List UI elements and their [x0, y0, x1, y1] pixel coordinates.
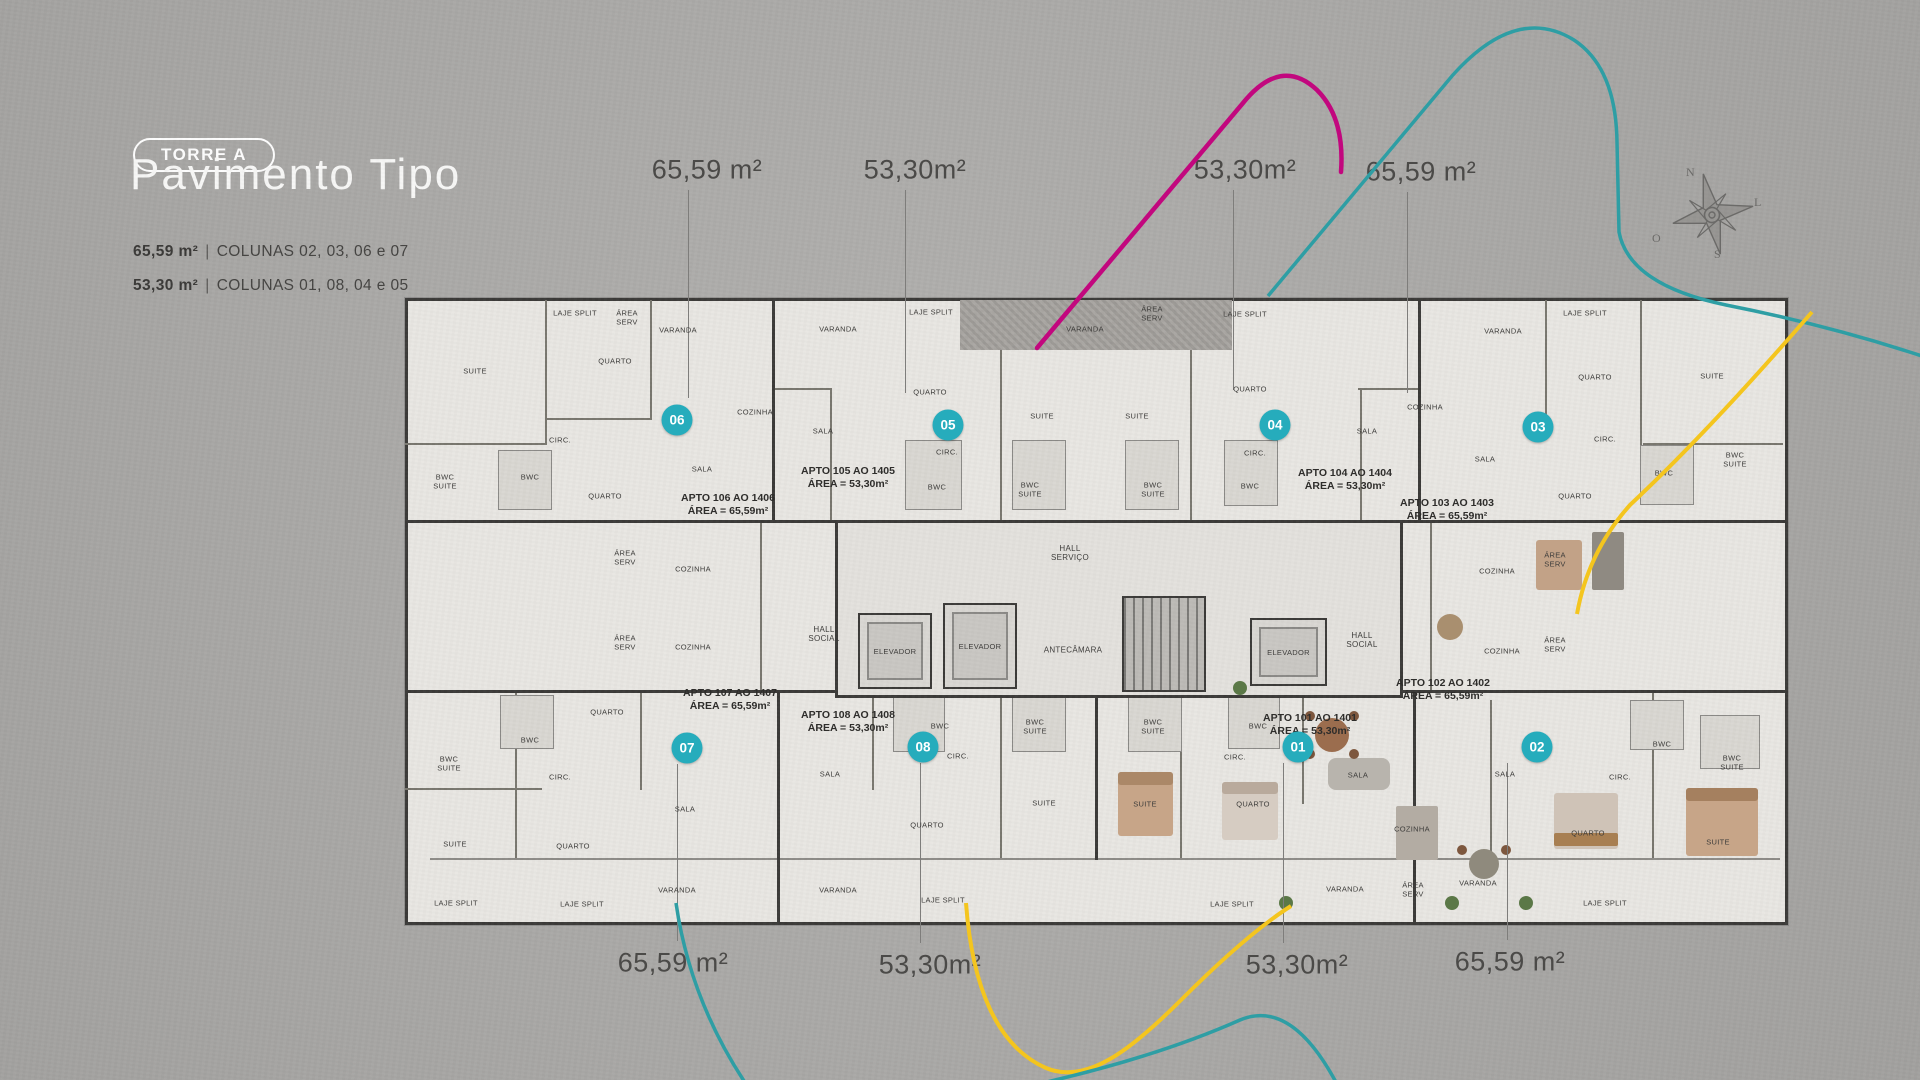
callout-leader-7 — [1507, 763, 1508, 940]
chair-4 — [1457, 845, 1467, 855]
floorplan-canvas: TORRE A Pavimento Tipo 65,59 m²|COLUNAS … — [0, 0, 1920, 1080]
core-label-0: HALL SERVIÇO — [1051, 544, 1089, 562]
room-label-quarto-12: QUARTO — [913, 389, 947, 398]
room-label-laje-split-9: LAJE SPLIT — [1563, 310, 1607, 319]
callout-leader-3 — [1407, 192, 1408, 393]
callout-leader-1 — [905, 190, 906, 393]
room-label-bwc-suite-78: BWC SUITE — [1720, 754, 1744, 771]
room-label-cozinha-41: COZINHA — [1479, 568, 1515, 577]
unit-wall-3 — [1095, 692, 1098, 860]
compass-west-label: O — [1652, 231, 1661, 245]
area-callout-7: 65,59 m² — [1455, 947, 1566, 978]
interior-wall-11 — [1545, 300, 1547, 418]
furniture-3 — [1222, 782, 1278, 794]
room-label-bwc-suite-46: BWC SUITE — [437, 755, 461, 772]
bathroom-block-3 — [1125, 440, 1179, 510]
room-label-circ--49: CIRC. — [549, 774, 571, 783]
legend-row-65: 65,59 m²|COLUNAS 02, 03, 06 e 07 — [133, 243, 409, 261]
room-label-suite-13: SUITE — [1030, 413, 1054, 422]
room-label-quarto-35: QUARTO — [1558, 493, 1592, 502]
unit-badge-01: 01 — [1283, 732, 1314, 763]
apartment-label-103: APTO 103 AO 1403 ÁREA = 65,59m² — [1400, 497, 1494, 523]
compass-north-label: N — [1686, 165, 1695, 179]
room-label-varanda-5: VARANDA — [1066, 326, 1104, 335]
callout-leader-5 — [920, 763, 921, 943]
room-label-varanda-53: VARANDA — [658, 887, 696, 896]
apartment-label-101: APTO 101 AO 1401 ÁREA = 53,30m² — [1263, 712, 1357, 738]
room-label--rea-serv-40: ÁREA SERV — [1544, 551, 1566, 568]
room-label-suite-10: SUITE — [463, 368, 487, 377]
core-label-1: ANTECÂMARA — [1044, 645, 1103, 654]
core-label-3: HALL SOCIAL — [1346, 631, 1377, 649]
room-label-circ--29: CIRC. — [1594, 436, 1616, 445]
furniture-1 — [1118, 772, 1173, 785]
compass-rose — [1664, 165, 1761, 262]
room-label-cozinha-43: COZINHA — [675, 644, 711, 653]
plant-icon-2 — [1519, 896, 1533, 910]
stairwell — [1122, 596, 1206, 692]
yellow-capsule-bottom — [966, 903, 1291, 1072]
plant-icon-1 — [1445, 896, 1459, 910]
table-round-2 — [1437, 614, 1463, 640]
room-label-suite-14: SUITE — [1125, 413, 1149, 422]
room-label--rea-serv-42: ÁREA SERV — [614, 634, 636, 651]
room-label-bwc-suite-33: BWC SUITE — [433, 473, 457, 490]
room-label--rea-serv-38: ÁREA SERV — [614, 549, 636, 566]
legend-area-65: 65,59 m² — [133, 243, 198, 260]
room-label--rea-serv-72: ÁREA SERV — [1402, 881, 1424, 898]
room-label-laje-split-55: LAJE SPLIT — [434, 900, 478, 909]
interior-wall-0 — [545, 300, 547, 445]
apartment-label-108: APTO 108 AO 1408 ÁREA = 53,30m² — [801, 709, 895, 735]
table-round-1 — [1469, 849, 1499, 879]
room-label-cozinha-45: COZINHA — [1484, 648, 1520, 657]
apartment-label-107: APTO 107 AO 1407 ÁREA = 65,59m² — [683, 687, 777, 713]
room-label-quarto-51: QUARTO — [556, 843, 590, 852]
legend-area-53: 53,30 m² — [133, 277, 198, 294]
room-label-bwc-suite-64: BWC SUITE — [1141, 718, 1165, 735]
plant-icon-0 — [1279, 896, 1293, 910]
unit-badge-03: 03 — [1523, 412, 1554, 443]
room-label-bwc-suite-37: BWC SUITE — [1723, 451, 1747, 468]
interior-wall-3 — [547, 418, 652, 420]
legend-separator: | — [205, 277, 209, 294]
callout-leader-0 — [688, 190, 689, 398]
room-label-circ--18: CIRC. — [549, 437, 571, 446]
interior-wall-18 — [872, 692, 874, 790]
room-label-bwc-47: BWC — [521, 737, 539, 746]
room-label-cozinha-39: COZINHA — [675, 566, 711, 575]
room-label-laje-split-4: LAJE SPLIT — [909, 309, 953, 318]
interior-wall-12 — [1640, 300, 1642, 445]
apartment-label-102: APTO 102 AO 1402 ÁREA = 65,59m² — [1396, 677, 1490, 703]
room-label-bwc-22: BWC — [928, 484, 946, 493]
room-label-sala-74: SALA — [1495, 771, 1515, 780]
room-label--rea-serv-6: ÁREA SERV — [1141, 305, 1163, 322]
bathroom-block-2 — [1012, 440, 1066, 510]
interior-wall-5 — [772, 388, 832, 390]
unit-badge-05: 05 — [933, 410, 964, 441]
room-label-bwc-36: BWC — [1655, 470, 1673, 479]
core-label-2: HALL SOCIAL — [808, 625, 839, 643]
legend-cols-65: COLUNAS 02, 03, 06 e 07 — [217, 243, 409, 260]
callout-leader-6 — [1283, 763, 1284, 943]
room-label-quarto-31: QUARTO — [588, 493, 622, 502]
apartment-label-105: APTO 105 AO 1405 ÁREA = 53,30m² — [801, 465, 895, 491]
interior-wall-14 — [1430, 523, 1432, 690]
room-label-bwc-58: BWC — [931, 723, 949, 732]
balcony-line — [430, 858, 1780, 860]
elevator-2: ELEVADOR — [943, 603, 1017, 689]
room-label-sala-27: SALA — [1357, 428, 1377, 437]
room-label-sala-52: SALA — [675, 806, 695, 815]
room-label-varanda-60: VARANDA — [819, 887, 857, 896]
interior-wall-22 — [1490, 700, 1492, 858]
unit-badge-07: 07 — [672, 733, 703, 764]
elevator-label: ELEVADOR — [860, 615, 930, 687]
interior-wall-8 — [1358, 388, 1420, 390]
room-label-quarto-11: QUARTO — [598, 358, 632, 367]
area-callout-2: 53,30m² — [1194, 155, 1297, 186]
room-label-bwc-suite-23: BWC SUITE — [1018, 481, 1042, 498]
elevator-3: ELEVADOR — [1250, 618, 1327, 686]
room-label-bwc-suite-62: BWC SUITE — [1023, 718, 1047, 735]
room-label--rea-serv-1: ÁREA SERV — [616, 309, 638, 326]
room-label-bwc-32: BWC — [521, 474, 539, 483]
room-label-cozinha-70: COZINHA — [1394, 826, 1430, 835]
legend-separator: | — [205, 243, 209, 260]
room-label-laje-split-0: LAJE SPLIT — [553, 310, 597, 319]
interior-wall-7 — [1190, 350, 1192, 522]
room-label-varanda-71: VARANDA — [1326, 886, 1364, 895]
callout-leader-2 — [1233, 190, 1234, 390]
room-label-bwc-25: BWC — [1241, 483, 1259, 492]
room-label-quarto-75: QUARTO — [1571, 830, 1605, 839]
room-label-quarto-48: QUARTO — [590, 709, 624, 718]
unit-badge-08: 08 — [908, 732, 939, 763]
room-label-sala-20: SALA — [813, 428, 833, 437]
area-callout-0: 65,59 m² — [652, 155, 763, 186]
room-label-quarto-15: QUARTO — [1233, 386, 1267, 395]
room-label-circ--79: CIRC. — [1609, 774, 1631, 783]
room-label-sala-69: SALA — [1348, 772, 1368, 781]
area-callout-3: 65,59 m² — [1366, 157, 1477, 188]
furniture-9 — [1686, 788, 1758, 801]
plant-icon-3 — [1233, 681, 1247, 695]
unit-badge-04: 04 — [1260, 410, 1291, 441]
room-label-varanda-8: VARANDA — [1484, 328, 1522, 337]
interior-wall-19 — [1000, 692, 1002, 858]
room-label-suite-17: SUITE — [1700, 373, 1724, 382]
area-callout-6: 53,30m² — [1246, 950, 1349, 981]
room-label-sala-56: SALA — [820, 771, 840, 780]
interior-wall-4 — [830, 388, 832, 522]
compass-east-label: L — [1754, 195, 1761, 209]
teal-arc-bottom-right — [1020, 1016, 1338, 1080]
elevator-label: ELEVADOR — [945, 605, 1015, 687]
chair-3 — [1349, 749, 1359, 759]
room-label-bwc-77: BWC — [1653, 741, 1671, 750]
room-label-laje-split-73: LAJE SPLIT — [1210, 901, 1254, 910]
interior-wall-16 — [640, 692, 642, 790]
unit-wall-2 — [777, 692, 780, 922]
room-label-sala-30: SALA — [692, 466, 712, 475]
apartment-label-106: APTO 106 AO 1406 ÁREA = 65,59m² — [681, 492, 775, 518]
page-title: Pavimento Tipo — [130, 150, 461, 200]
legend-cols-53: COLUNAS 01, 08, 04 e 05 — [217, 277, 409, 294]
elevator-1: ELEVADOR — [858, 613, 932, 689]
interior-wall-1 — [650, 300, 652, 418]
interior-wall-6 — [1000, 350, 1002, 522]
elevator-label: ELEVADOR — [1252, 620, 1325, 684]
unit-badge-02: 02 — [1522, 732, 1553, 763]
compass-south-label: S — [1714, 247, 1721, 261]
room-label-varanda-2: VARANDA — [659, 327, 697, 336]
room-label-suite-63: SUITE — [1032, 800, 1056, 809]
room-label-circ--21: CIRC. — [936, 449, 958, 458]
apartment-label-104: APTO 104 AO 1404 ÁREA = 53,30m² — [1298, 467, 1392, 493]
room-label-bwc-suite-24: BWC SUITE — [1141, 481, 1165, 498]
room-label-laje-split-81: LAJE SPLIT — [1583, 900, 1627, 909]
room-label-varanda-80: VARANDA — [1459, 880, 1497, 889]
area-callout-5: 53,30m² — [879, 950, 982, 981]
area-callout-4: 65,59 m² — [618, 948, 729, 979]
room-label-laje-split-7: LAJE SPLIT — [1223, 311, 1267, 320]
interior-wall-17 — [405, 788, 542, 790]
room-label-laje-split-54: LAJE SPLIT — [560, 901, 604, 910]
room-label-quarto-59: QUARTO — [910, 822, 944, 831]
legend-row-53: 53,30 m²|COLUNAS 01, 08, 04 e 05 — [133, 277, 409, 295]
room-label--rea-serv-44: ÁREA SERV — [1544, 636, 1566, 653]
room-label-circ--57: CIRC. — [947, 753, 969, 762]
area-callout-1: 53,30m² — [864, 155, 967, 186]
room-label-varanda-3: VARANDA — [819, 326, 857, 335]
room-label-quarto-16: QUARTO — [1578, 374, 1612, 383]
callout-leader-4 — [677, 764, 678, 941]
room-label-suite-50: SUITE — [443, 841, 467, 850]
room-label-sala-34: SALA — [1475, 456, 1495, 465]
room-label-cozinha-19: COZINHA — [737, 409, 773, 418]
room-label-suite-76: SUITE — [1706, 839, 1730, 848]
interior-wall-9 — [1360, 388, 1362, 522]
room-label-laje-split-61: LAJE SPLIT — [921, 897, 965, 906]
room-label-circ--67: CIRC. — [1224, 754, 1246, 763]
room-label-quarto-68: QUARTO — [1236, 801, 1270, 810]
room-label-suite-65: SUITE — [1133, 801, 1157, 810]
unit-badge-06: 06 — [662, 405, 693, 436]
teal-arc-bottom-left — [676, 903, 746, 1080]
room-label-cozinha-28: COZINHA — [1407, 404, 1443, 413]
interior-wall-13 — [760, 523, 762, 690]
room-label-circ--26: CIRC. — [1244, 450, 1266, 459]
furniture-11 — [1592, 532, 1624, 590]
chair-5 — [1501, 845, 1511, 855]
interior-wall-2 — [405, 443, 547, 445]
